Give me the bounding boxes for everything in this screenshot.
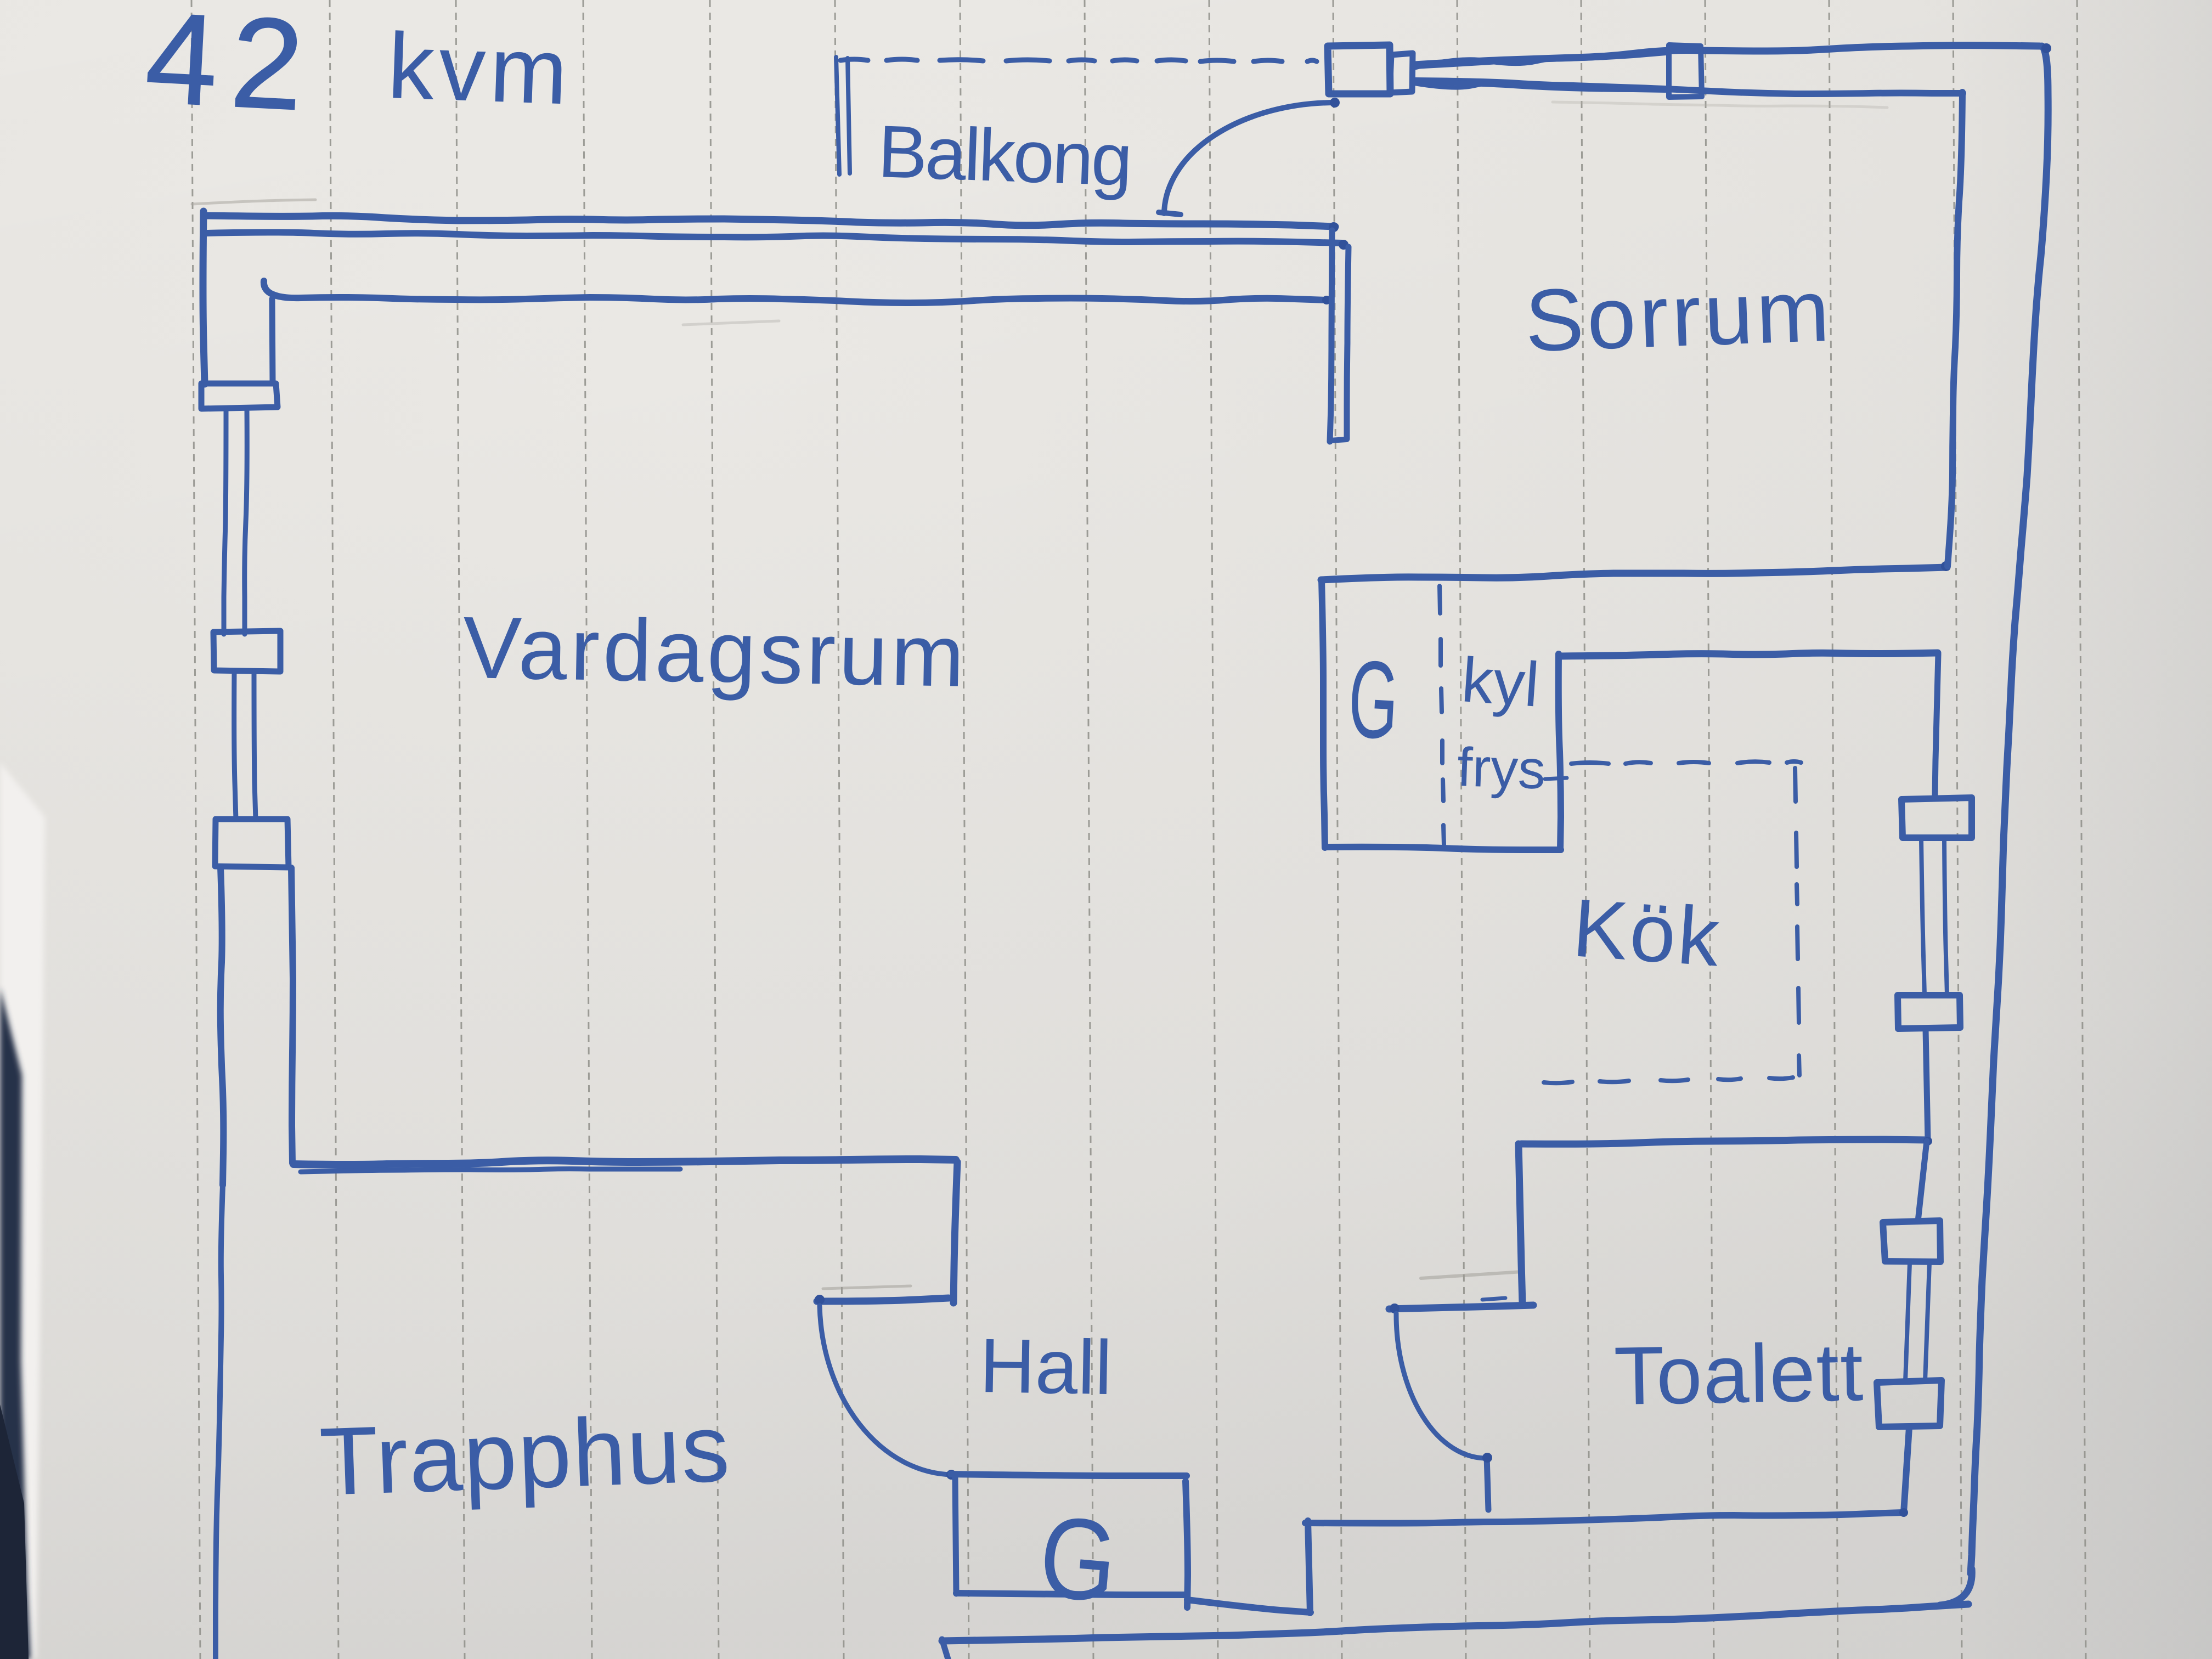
svg-text:G: G <box>1346 637 1402 762</box>
svg-text:kyl: kyl <box>1459 645 1541 720</box>
svg-text:Sorrum: Sorrum <box>1523 261 1834 370</box>
svg-text:frys: frys <box>1456 736 1547 801</box>
svg-text:Hall: Hall <box>979 1322 1113 1410</box>
svg-text:Kök: Kök <box>1570 881 1725 983</box>
svg-text:Balkong: Balkong <box>877 110 1132 201</box>
svg-text:Trapphus: Trapphus <box>318 1395 732 1516</box>
svg-text:G: G <box>1035 1492 1122 1627</box>
svg-text:Toalett: Toalett <box>1613 1325 1865 1422</box>
svg-text:kvm: kvm <box>386 14 574 125</box>
svg-text:42: 42 <box>142 0 320 138</box>
svg-text:Vardagsrum: Vardagsrum <box>462 598 968 705</box>
